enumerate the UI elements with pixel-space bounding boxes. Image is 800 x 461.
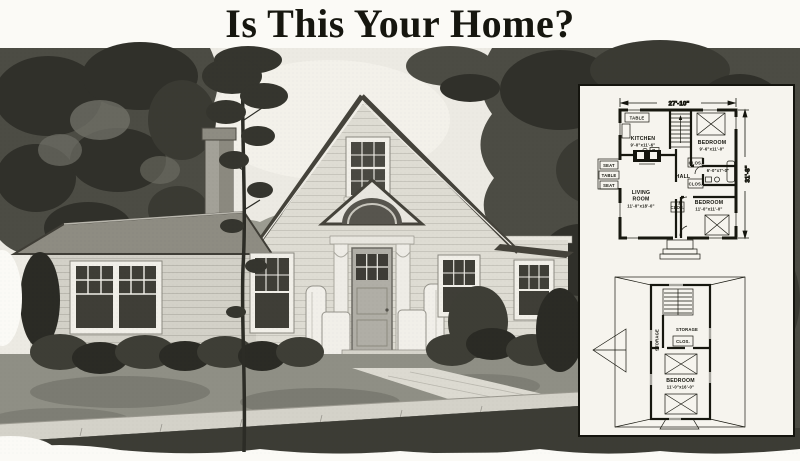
breakfast-nook: SEAT TABLE SEAT [598, 159, 622, 189]
second-floor-plan-drawing: STORAGE STORAGE CLOS. BEDROOM 11'-0"x16'… [581, 270, 794, 436]
storage-left-label: STORAGE [655, 329, 660, 351]
toilet [715, 177, 720, 182]
living-room: LIVING ROOM 11'-0"x18'-0" [627, 190, 654, 209]
upstairs-stairs [663, 289, 693, 315]
bedroom2-dim-label: 11'-0"x11'-0" [695, 207, 722, 212]
first-floor-plan-drawing: 27'-10" 31'-8" SEA [581, 87, 794, 270]
floor-plan-panel: 27'-10" 31'-8" SEA [578, 84, 795, 437]
porch-steps [660, 240, 700, 259]
closet1-label: CLOS. [689, 161, 703, 166]
fireplace [633, 150, 661, 164]
kitchen-counter [622, 124, 630, 138]
nook-seat-top-label: SEAT [603, 163, 615, 168]
bedroom2: BEDROOM 11'-0"x11'-0" [695, 200, 729, 235]
upstairs-closet-label: CLOS. [676, 339, 690, 344]
kitchen-dim-label: 9'-0"x11'-6" [631, 143, 656, 148]
closet3-label: CLOS. [671, 205, 685, 210]
bottom-bay [660, 419, 699, 429]
living-room-dim-label: 11'-0"x18'-0" [627, 204, 654, 209]
width-dimension-label: 27'-10" [669, 101, 690, 108]
closet2-label: CLOS. [689, 182, 703, 187]
roof-outline [593, 277, 745, 427]
stairs [670, 110, 691, 147]
storage-center-label: STORAGE [676, 327, 698, 332]
depth-dimension-label: 31'-8" [745, 165, 752, 182]
depth-dimension: 31'-8" [738, 110, 752, 238]
living-room-label2: ROOM [633, 197, 650, 203]
sink [706, 177, 712, 182]
nook-seat-bottom-label: SEAT [603, 183, 615, 188]
nook-table-label: TABLE [602, 173, 617, 178]
bathroom: 6'-0"x7'-0" [706, 161, 735, 182]
hall-label: HALL [676, 174, 691, 180]
upstairs-bedroom-label: BEDROOM [666, 378, 695, 384]
kitchen-label: KITCHEN [631, 136, 656, 142]
bedroom1-dim-label: 9'-6"x11'-0" [700, 147, 725, 152]
upstairs-bedroom: BEDROOM 11'-0"x16'-0" [665, 354, 697, 414]
bath-dim-label: 6'-0"x7'-0" [707, 168, 730, 173]
upstairs-bedroom-dim-label: 11'-0"x16'-0" [667, 385, 694, 390]
bedroom1: BEDROOM 9'-6"x11'-0" [697, 113, 726, 152]
first-floor-plan: 27'-10" 31'-8" SEA [598, 98, 752, 259]
living-room-label1: LIVING [632, 190, 651, 196]
alcove-table-label: TABLE [630, 116, 645, 121]
bedroom2-label: BEDROOM [695, 200, 724, 206]
second-floor-plan: STORAGE STORAGE CLOS. BEDROOM 11'-0"x16'… [593, 277, 745, 429]
catalog-page: Is This Your Home? [0, 0, 800, 461]
bedroom1-label: BEDROOM [698, 140, 727, 146]
width-dimension: 27'-10" [620, 98, 736, 108]
left-wing-roof-plan [593, 329, 626, 372]
